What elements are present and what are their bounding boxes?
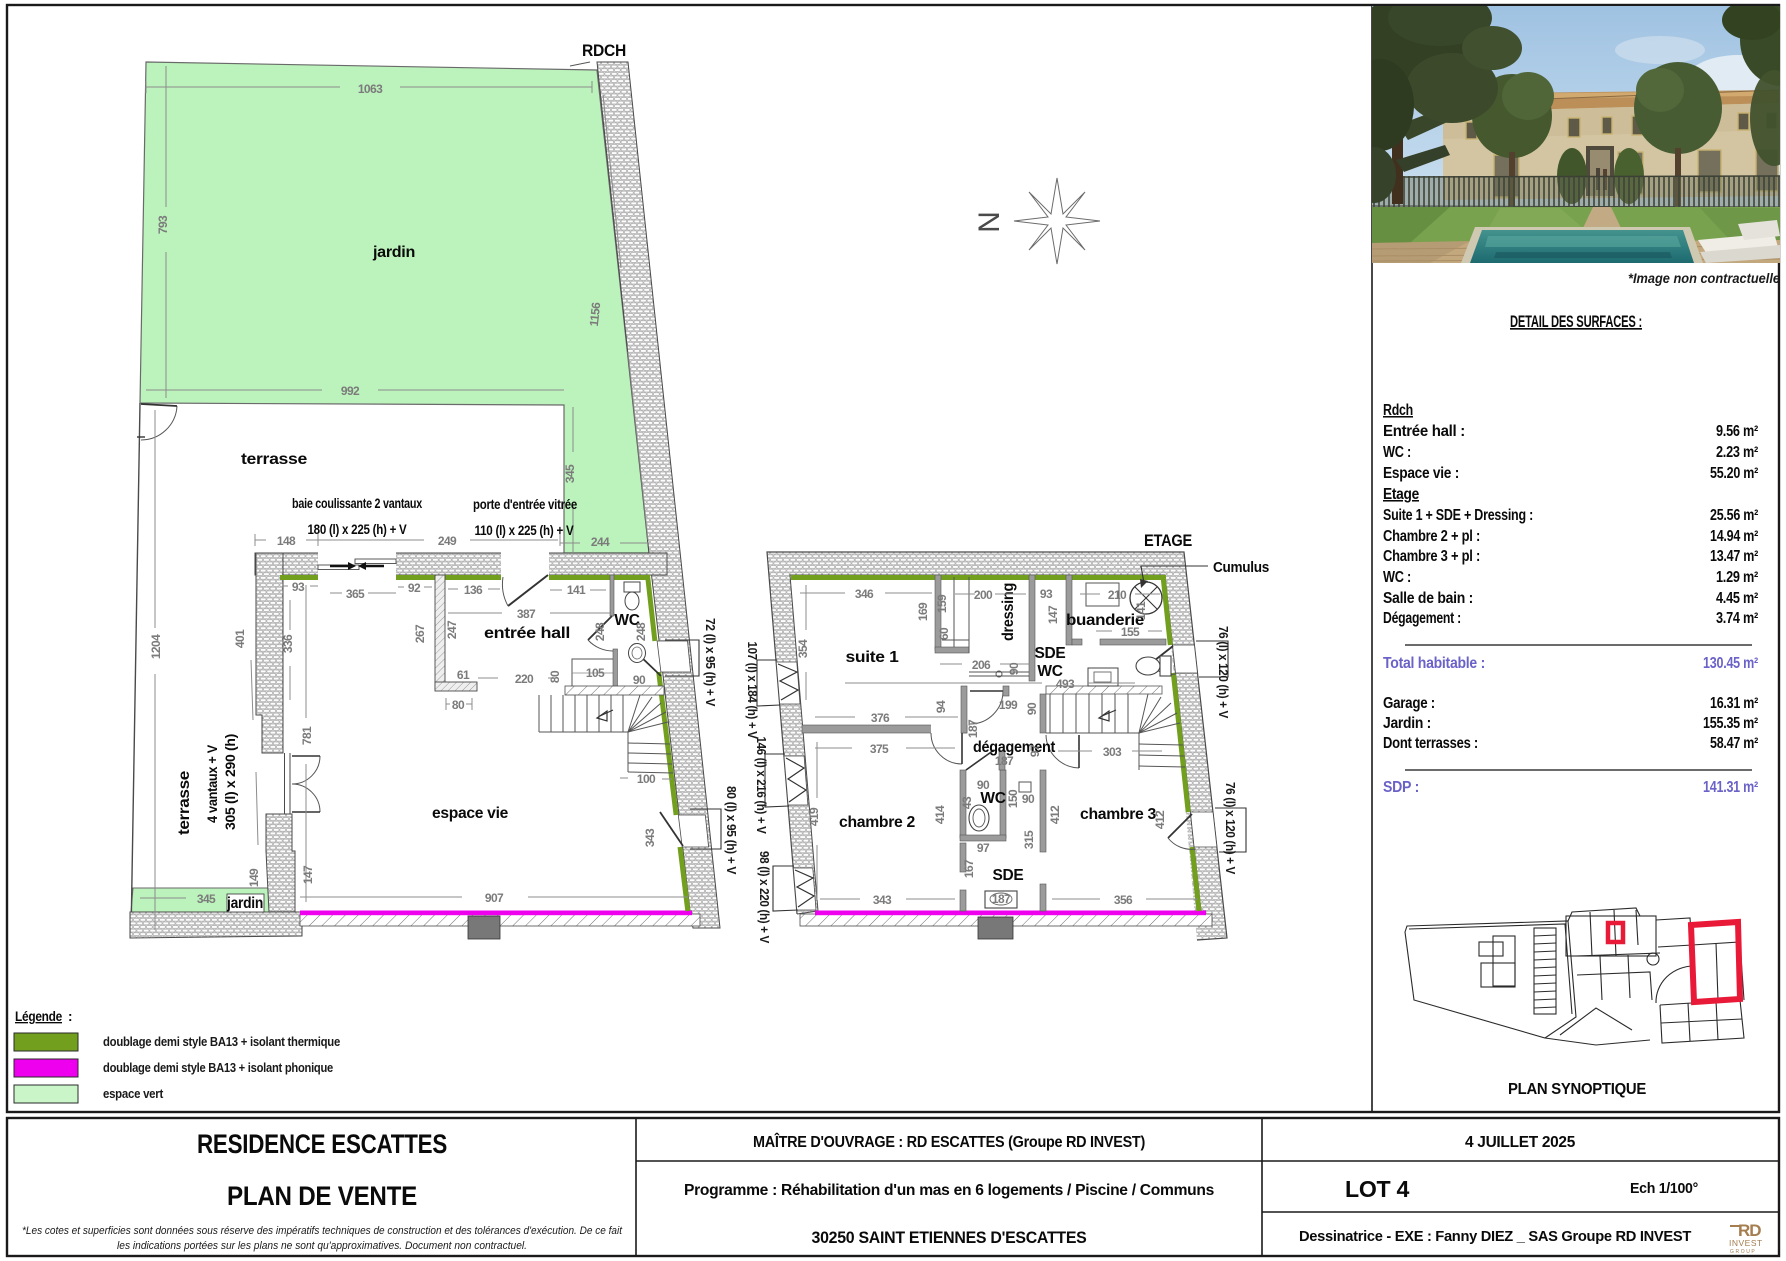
- svg-text:RESIDENCE ESCATTES: RESIDENCE ESCATTES: [197, 1129, 447, 1159]
- svg-text:147: 147: [1046, 605, 1060, 624]
- svg-text:espace vert: espace vert: [103, 1086, 164, 1101]
- svg-text:169: 169: [916, 602, 930, 621]
- svg-text:493: 493: [1056, 677, 1075, 691]
- svg-text:376: 376: [871, 711, 890, 725]
- svg-text:781: 781: [300, 726, 314, 745]
- svg-text:180 (l) x 225 (h) + V: 180 (l) x 225 (h) + V: [308, 522, 407, 537]
- svg-text:210: 210: [1108, 588, 1127, 602]
- svg-text:141.31 m²: 141.31 m²: [1703, 779, 1758, 796]
- svg-text:dressing: dressing: [1000, 583, 1017, 641]
- svg-text:PLAN SYNOPTIQUE: PLAN SYNOPTIQUE: [1508, 1081, 1647, 1098]
- svg-text:72 (l) x 95 (h) + V: 72 (l) x 95 (h) + V: [703, 618, 717, 707]
- svg-text:RDCH: RDCH: [582, 41, 626, 60]
- svg-text:148: 148: [277, 534, 296, 548]
- svg-text:149: 149: [247, 868, 261, 887]
- svg-text:N: N: [973, 211, 1006, 233]
- svg-text:1156: 1156: [587, 301, 603, 327]
- svg-text:Dont terrasses :: Dont terrasses :: [1383, 735, 1478, 752]
- svg-text:907: 907: [485, 891, 504, 905]
- svg-text:Dessinatrice - EXE : Fanny DIE: Dessinatrice - EXE : Fanny DIEZ _ SAS Gr…: [1299, 1229, 1691, 1245]
- svg-text:220: 220: [515, 672, 534, 686]
- svg-text:13.47 m²: 13.47 m²: [1710, 548, 1758, 565]
- svg-text:PLAN DE VENTE: PLAN DE VENTE: [227, 1181, 417, 1211]
- svg-text:159: 159: [935, 594, 949, 613]
- svg-text:793: 793: [156, 215, 170, 234]
- svg-text:SDE: SDE: [1035, 645, 1066, 662]
- svg-text:315: 315: [1022, 830, 1036, 849]
- svg-text:Cumulus: Cumulus: [1213, 560, 1269, 576]
- svg-text:90: 90: [1025, 702, 1039, 715]
- svg-text:entrée hall: entrée hall: [484, 625, 570, 642]
- svg-text:346: 346: [855, 587, 874, 601]
- svg-text:90: 90: [977, 778, 990, 792]
- svg-text:58.47 m²: 58.47 m²: [1710, 735, 1758, 752]
- svg-text:343: 343: [643, 828, 657, 847]
- svg-text:DETAIL DES SURFACES :: DETAIL DES SURFACES :: [1510, 313, 1642, 331]
- svg-text:Garage :: Garage :: [1383, 695, 1435, 712]
- svg-text:INVEST: INVEST: [1729, 1238, 1763, 1248]
- svg-text:267: 267: [413, 624, 427, 643]
- svg-text:4 JUILLET 2025: 4 JUILLET 2025: [1465, 1134, 1575, 1151]
- svg-text:187: 187: [995, 754, 1014, 768]
- svg-text:412: 412: [1153, 810, 1167, 829]
- svg-text:1204: 1204: [149, 634, 163, 659]
- svg-text:4.45 m²: 4.45 m²: [1716, 590, 1758, 607]
- svg-text:244: 244: [591, 535, 610, 549]
- svg-text:76 (l) x 120 (h) + V: 76 (l) x 120 (h) + V: [1216, 626, 1230, 719]
- svg-text:206: 206: [972, 658, 991, 672]
- svg-text:150: 150: [1006, 789, 1020, 808]
- svg-text:Salle de bain :: Salle de bain :: [1383, 590, 1473, 607]
- svg-text:90: 90: [633, 673, 646, 687]
- svg-text:Dégagement :: Dégagement :: [1383, 610, 1461, 627]
- svg-text:141: 141: [567, 583, 586, 597]
- svg-text:356: 356: [1114, 893, 1133, 907]
- svg-text:199: 199: [999, 698, 1018, 712]
- svg-text:100: 100: [637, 772, 656, 786]
- svg-text:336: 336: [281, 634, 295, 653]
- svg-text:345: 345: [197, 892, 216, 906]
- svg-text:MAÎTRE D'OUVRAGE : RD ESCATTES: MAÎTRE D'OUVRAGE : RD ESCATTES (Groupe R…: [753, 1132, 1145, 1151]
- svg-text:WC :: WC :: [1383, 569, 1411, 586]
- svg-text:90: 90: [1007, 662, 1021, 675]
- svg-text:375: 375: [870, 742, 889, 756]
- svg-text:98 (l) x 220 (h) + V: 98 (l) x 220 (h) + V: [757, 851, 771, 944]
- svg-text:136: 136: [464, 583, 483, 597]
- svg-text:60: 60: [937, 627, 951, 640]
- svg-text:2.23 m²: 2.23 m²: [1716, 444, 1758, 461]
- svg-text:992: 992: [341, 384, 360, 398]
- svg-text:1063: 1063: [358, 82, 383, 96]
- svg-text:SDE: SDE: [993, 867, 1024, 884]
- svg-text:55.20 m²: 55.20 m²: [1710, 465, 1758, 482]
- svg-text:Espace vie :: Espace vie :: [1383, 465, 1459, 482]
- svg-text:90: 90: [1022, 792, 1035, 806]
- svg-text:110 (l) x 225 (h) + V: 110 (l) x 225 (h) + V: [475, 523, 574, 538]
- svg-text:146 (l) x 216 (h) + V: 146 (l) x 216 (h) + V: [754, 737, 768, 835]
- svg-text:248: 248: [593, 622, 607, 641]
- svg-text:Chambre 2 + pl :: Chambre 2 + pl :: [1383, 528, 1480, 545]
- svg-text::: :: [68, 1009, 73, 1024]
- svg-text:43: 43: [960, 796, 974, 809]
- svg-text:WC :: WC :: [1383, 444, 1411, 461]
- svg-text:Ech 1/100°: Ech 1/100°: [1630, 1181, 1698, 1197]
- svg-text:Programme : Réhabilitation d'u: Programme : Réhabilitation d'un mas en 6…: [684, 1182, 1214, 1199]
- svg-text:jardin: jardin: [226, 895, 263, 912]
- svg-text:93: 93: [292, 580, 305, 594]
- svg-text:*Les cotes et superficies sont: *Les cotes et superficies sont données s…: [22, 1225, 623, 1237]
- svg-text:9.56 m²: 9.56 m²: [1716, 423, 1758, 440]
- svg-text:365: 365: [346, 587, 365, 601]
- svg-text:chambre 3: chambre 3: [1080, 806, 1157, 823]
- svg-text:les indications portées sur le: les indications portées sur les plans ne…: [117, 1240, 527, 1252]
- svg-text:doublage demi style BA13 + iso: doublage demi style BA13 + isolant therm…: [103, 1034, 340, 1049]
- svg-text:4 vantaux + V: 4 vantaux + V: [204, 744, 220, 823]
- svg-text:3.74 m²: 3.74 m²: [1716, 610, 1758, 627]
- svg-text:30250 SAINT ETIENNES D'ESCATTE: 30250 SAINT ETIENNES D'ESCATTES: [812, 1228, 1087, 1247]
- svg-text:92: 92: [408, 581, 421, 595]
- svg-text:suite 1: suite 1: [846, 649, 900, 666]
- svg-text:419: 419: [807, 807, 821, 826]
- svg-text:Etage: Etage: [1383, 486, 1420, 503]
- svg-text:baie coulissante 2 vantaux: baie coulissante 2 vantaux: [292, 496, 423, 511]
- svg-text:SDP :: SDP :: [1383, 779, 1419, 796]
- svg-text:Chambre 3 + pl :: Chambre 3 + pl :: [1383, 548, 1480, 565]
- svg-text:303: 303: [1103, 745, 1122, 759]
- svg-text:187: 187: [966, 719, 980, 738]
- svg-text:94: 94: [934, 700, 948, 713]
- svg-text:WC: WC: [980, 790, 1005, 807]
- svg-text:155.35 m²: 155.35 m²: [1703, 715, 1758, 732]
- svg-text:130.45 m²: 130.45 m²: [1703, 655, 1758, 672]
- svg-text:248: 248: [634, 622, 648, 641]
- svg-text:Légende: Légende: [15, 1009, 63, 1024]
- svg-text:200: 200: [974, 588, 993, 602]
- svg-text:Rdch: Rdch: [1383, 402, 1413, 419]
- svg-text:*Image non contractuelle: *Image non contractuelle: [1628, 270, 1780, 286]
- svg-text:16.31 m²: 16.31 m²: [1710, 695, 1758, 712]
- svg-text:155: 155: [1121, 625, 1140, 639]
- svg-text:jardin: jardin: [372, 244, 415, 261]
- svg-text:401: 401: [233, 629, 247, 648]
- svg-text:61: 61: [457, 668, 470, 682]
- svg-text:167: 167: [962, 859, 976, 878]
- svg-text:25.56 m²: 25.56 m²: [1710, 507, 1758, 524]
- svg-text:141: 141: [1134, 601, 1148, 620]
- svg-text:247: 247: [445, 620, 459, 639]
- svg-text:Suite 1 + SDE + Dressing :: Suite 1 + SDE + Dressing :: [1383, 507, 1533, 524]
- svg-text:80: 80: [452, 698, 465, 712]
- svg-text:14.94 m²: 14.94 m²: [1710, 528, 1758, 545]
- svg-text:345: 345: [563, 464, 577, 483]
- svg-text:terrasse: terrasse: [176, 770, 193, 835]
- svg-text:1.29 m²: 1.29 m²: [1716, 569, 1758, 586]
- svg-text:Entrée hall :: Entrée hall :: [1383, 423, 1465, 440]
- svg-text:93: 93: [1040, 587, 1053, 601]
- svg-text:80 (l) x 95 (h) + V: 80 (l) x 95 (h) + V: [724, 786, 738, 875]
- svg-text:97: 97: [977, 841, 990, 855]
- svg-text:305 (l) x 290 (h): 305 (l) x 290 (h): [222, 734, 238, 830]
- svg-text:porte d'entrée vitrée: porte d'entrée vitrée: [473, 497, 578, 512]
- svg-text:97: 97: [1028, 744, 1042, 757]
- svg-text:343: 343: [873, 893, 892, 907]
- svg-text:187: 187: [992, 892, 1011, 906]
- svg-text:414: 414: [933, 805, 947, 824]
- svg-text:387: 387: [517, 607, 536, 621]
- svg-text:espace vie: espace vie: [432, 805, 509, 822]
- svg-text:Total habitable :: Total habitable :: [1383, 655, 1485, 672]
- svg-text:354: 354: [796, 639, 810, 658]
- svg-text:249: 249: [438, 534, 457, 548]
- svg-text:Jardin :: Jardin :: [1383, 715, 1431, 732]
- svg-text:ETAGE: ETAGE: [1144, 531, 1192, 550]
- svg-text:80: 80: [548, 670, 562, 683]
- svg-text:147: 147: [301, 865, 315, 884]
- svg-text:dégagement: dégagement: [973, 739, 1055, 756]
- svg-text:412: 412: [1048, 805, 1062, 824]
- svg-text:GROUP: GROUP: [1730, 1249, 1756, 1255]
- svg-text:LOT 4: LOT 4: [1345, 1176, 1410, 1202]
- svg-text:105: 105: [586, 666, 605, 680]
- svg-text:76 (l) x 120 (h) + V: 76 (l) x 120 (h) + V: [1223, 782, 1237, 875]
- svg-text:chambre 2: chambre 2: [839, 814, 915, 831]
- svg-text:terrasse: terrasse: [241, 451, 308, 468]
- svg-text:doublage demi style BA13 + iso: doublage demi style BA13 + isolant phoni…: [103, 1060, 333, 1075]
